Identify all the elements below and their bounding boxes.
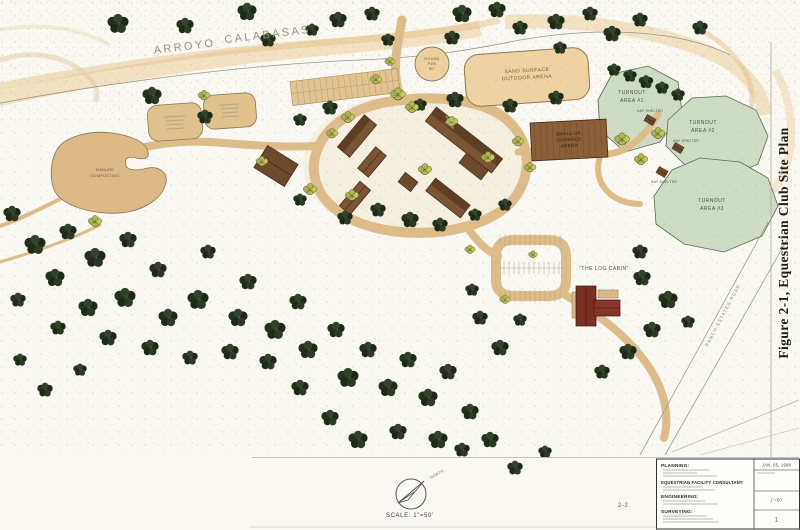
log-cabin-label: "THE LOG CABIN" (579, 266, 629, 272)
turnout3-label-2: AREA #3 (700, 206, 724, 212)
turnout2-label-2: AREA #2 (691, 128, 715, 134)
site-plan-sheet: SMALL OR COVERED ARENA (0, 0, 800, 530)
turnout3-label-1: TURNOUT (698, 198, 726, 204)
titleblock-consultant-header: EQUESTRIAN FACILITY CONSULTANT: (661, 480, 744, 485)
covered-arena-label-3: ARENA (561, 143, 578, 149)
north-label: NORTH (430, 469, 445, 480)
ground-stipple (0, 0, 800, 455)
titleblock-planning-header: PLANNING: (661, 463, 690, 469)
manure-label-1: MANURE (96, 168, 114, 172)
covered-arena: SMALL OR COVERED ARENA (530, 119, 608, 161)
turnout2-shelter-label: HAY SHELTER (673, 139, 700, 143)
titleblock-date: JAN. 05, 1998 (762, 463, 792, 468)
scale-label: SCALE: 1"=50' (386, 513, 434, 519)
turnout1-label-2: AREA #1 (620, 98, 644, 104)
turnout2-label-1: TURNOUT (689, 120, 717, 126)
page-number: 2-2 (618, 503, 629, 509)
north-arrow: NORTH (396, 469, 444, 509)
turnout1-shelter-label: HAY SHELTER (637, 109, 664, 113)
titleblock-engineering-header: ENGINEERING: (661, 494, 699, 500)
manure-label-2: COMPOSTING (91, 174, 120, 178)
turnout3-shelter-label: HAY SHELTER (651, 180, 678, 184)
site-plan-canvas: SMALL OR COVERED ARENA (0, 0, 800, 530)
titleblock-sheet-number: 1 (775, 517, 779, 524)
titleblock-surveying-header: SURVEYING: (661, 509, 693, 515)
round-pen-label-2: PEN (428, 62, 437, 66)
round-pen-label-1: ROUND (424, 57, 439, 61)
titleblock-scale-value: 1"=50' (770, 498, 783, 503)
round-pen-label-3: 60' (429, 67, 435, 71)
figure-title: Figure 2-1, Equestrian Club Site Plan (776, 127, 791, 358)
turnout1-label-1: TURNOUT (618, 90, 646, 96)
title-block: PLANNING: EQUESTRIAN FACILITY CONSULTANT… (657, 459, 800, 529)
